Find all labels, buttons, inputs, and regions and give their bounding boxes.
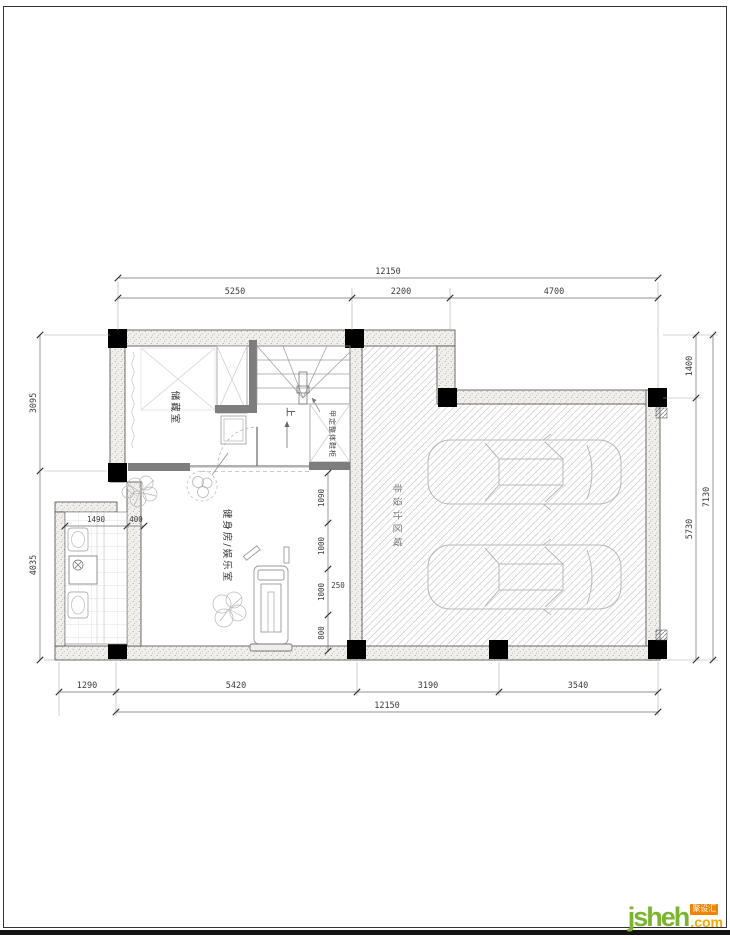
- staircase: [257, 346, 350, 404]
- column: [648, 640, 667, 659]
- dim-right-2: 5730: [685, 519, 695, 539]
- logo-tld: .com: [690, 915, 723, 929]
- dim-bottom-1: 1290: [77, 681, 97, 691]
- dim-wall-offset: 400: [129, 515, 143, 524]
- room-label-gym: 健身房/娱乐室: [221, 509, 233, 583]
- floor-plan: 12150 5250 2200 4700 1290 5420 3190 3540…: [0, 0, 730, 939]
- drawing-sheet: 12150 5250 2200 4700 1290 5420 3190 3540…: [0, 0, 730, 939]
- wall-right: [646, 390, 660, 660]
- soft-wall-finish: [132, 352, 134, 448]
- jsheh-logo[interactable]: jsheh 聚设汇 .com: [628, 904, 723, 929]
- dim-right-total: 7130: [702, 487, 712, 507]
- sheet-bottom-bar: [0, 930, 730, 935]
- dim-top-2: 2200: [391, 287, 411, 297]
- dim-laundry-width: 1490: [87, 515, 106, 524]
- dim-inner-4: 800: [317, 626, 326, 640]
- column: [108, 463, 127, 482]
- column: [347, 640, 366, 659]
- wall-left-upper: [110, 346, 125, 482]
- dim-top-1: 5250: [225, 287, 245, 297]
- dim-inner-2: 1000: [317, 536, 326, 555]
- column: [345, 329, 364, 348]
- dim-left-2: 4035: [29, 555, 39, 575]
- dim-bottom-3: 3190: [418, 681, 438, 691]
- column: [489, 640, 508, 659]
- storage-cabinet: [217, 346, 247, 444]
- sliding-door: [190, 465, 309, 468]
- wall-garage-top: [455, 390, 660, 404]
- dim-inner-3: 1000: [317, 582, 326, 601]
- column: [108, 329, 127, 348]
- dim-top-total: 12150: [375, 267, 401, 277]
- laundry-room: [65, 512, 127, 644]
- dim-inner-gap: 250: [331, 581, 345, 590]
- shower-pan: [69, 556, 97, 584]
- wall-gym-garage-divider: [350, 346, 362, 646]
- room-label-garage: 非设计区域: [391, 483, 403, 551]
- wall-top: [110, 330, 455, 346]
- logo-name: jsheh: [628, 907, 689, 929]
- existing-wall-bars: [128, 462, 350, 472]
- wall-laundry-left: [55, 512, 65, 646]
- dim-bottom-2: 5420: [226, 681, 246, 691]
- wall-laundry-top: [55, 502, 117, 512]
- room-label-storage: 储藏室: [169, 391, 181, 426]
- dim-bottom-4: 3540: [568, 681, 588, 691]
- treadmill: [243, 546, 292, 651]
- dim-right-1: 1400: [685, 356, 695, 376]
- label-stair-up: 上: [284, 407, 295, 419]
- plant: [187, 453, 228, 501]
- column: [438, 388, 457, 407]
- label-shoe-cabinet: 甲定整体鞋柜: [328, 410, 337, 458]
- plant: [213, 592, 246, 627]
- dim-left-1: 3095: [29, 393, 39, 413]
- dim-top-3: 4700: [544, 287, 564, 297]
- stair-up-arrow: [285, 421, 290, 448]
- column: [648, 388, 667, 407]
- dim-bottom-total: 12150: [374, 701, 400, 711]
- dim-inner-1: 1090: [317, 488, 326, 507]
